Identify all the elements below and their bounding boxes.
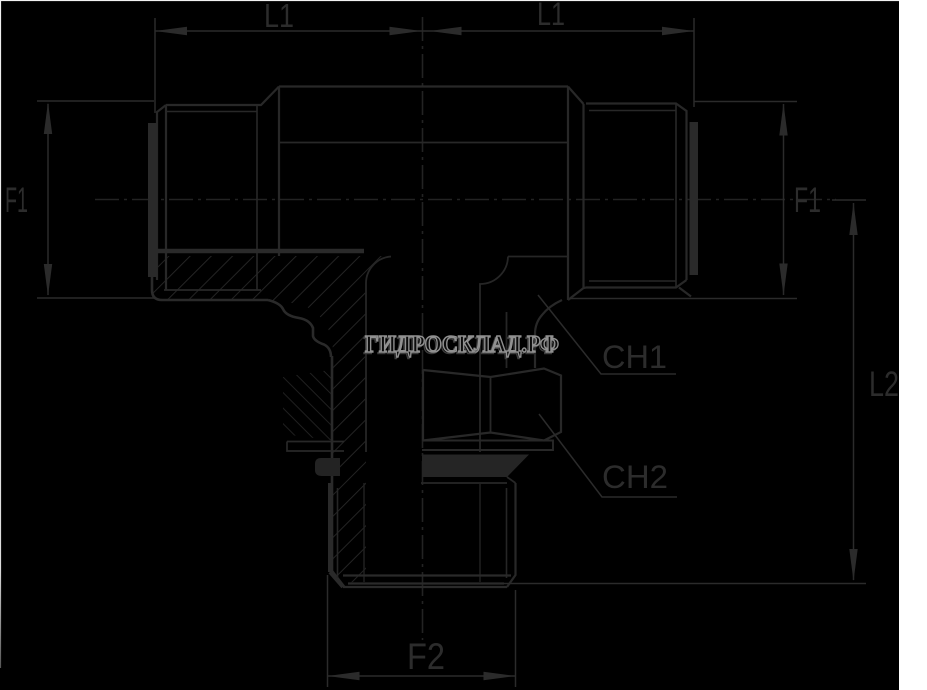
svg-text:F1: F1 bbox=[5, 181, 28, 220]
svg-text:CH2: CH2 bbox=[602, 459, 668, 495]
svg-text:L1: L1 bbox=[264, 0, 294, 34]
svg-text:F2: F2 bbox=[407, 636, 445, 677]
svg-text:ГИДРОСКЛАД.РФ: ГИДРОСКЛАД.РФ bbox=[365, 332, 559, 358]
svg-text:F1: F1 bbox=[794, 181, 821, 220]
svg-text:L1: L1 bbox=[537, 0, 565, 32]
svg-text:CH1: CH1 bbox=[602, 339, 667, 375]
svg-text:L2: L2 bbox=[869, 365, 899, 404]
